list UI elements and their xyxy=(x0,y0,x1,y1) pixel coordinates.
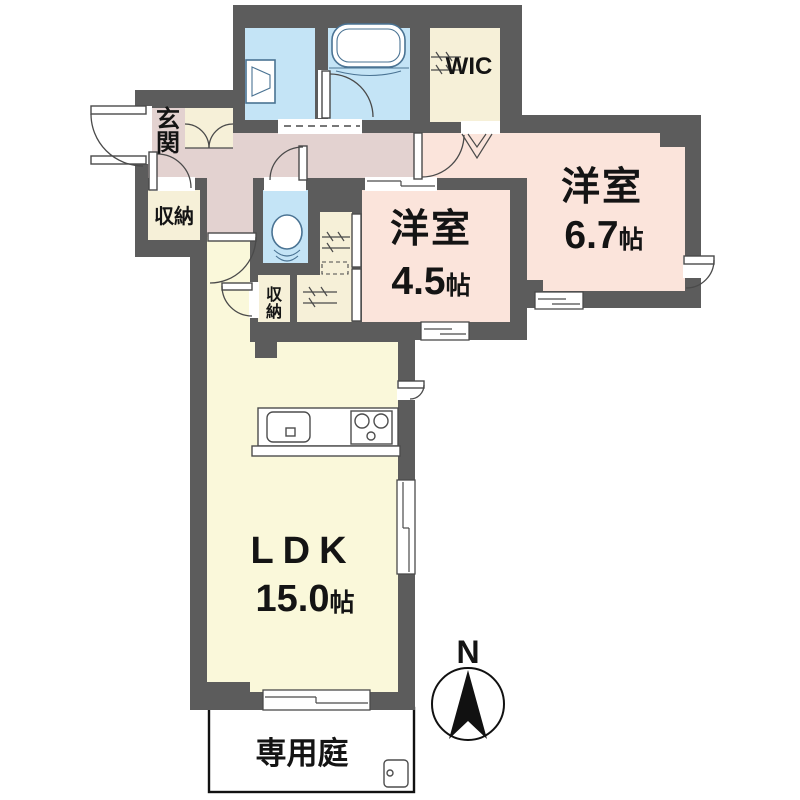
bedroom45-wall-vent xyxy=(421,322,469,340)
closet-door-panel2 xyxy=(352,269,361,321)
closet-upper-floor xyxy=(320,212,352,275)
kitchen-sink-icon xyxy=(267,412,310,442)
stove-burner-center xyxy=(367,432,375,440)
hallway-floor xyxy=(233,133,415,178)
wall-step-bedroom67-top xyxy=(660,133,685,147)
kitchen-counter-edge xyxy=(252,446,400,456)
floor-plan-page: 玄 関 収納 収 納 WIC 洋室 4.5帖 洋室 6.7帖 LDK 15.0帖… xyxy=(0,0,800,800)
bedroom67-label: 洋室 xyxy=(561,166,643,209)
toilet-door-leaf xyxy=(299,146,307,180)
ldk-side-window xyxy=(397,480,415,574)
toilet-icon xyxy=(272,215,302,249)
entrance-storage-label: 収納 xyxy=(154,204,194,228)
bedroom45-label: 洋室 xyxy=(390,208,472,251)
garden-faucet-knob xyxy=(387,770,393,776)
stove-burner-left xyxy=(355,414,369,428)
bedroom67-size-value: 6.7 xyxy=(564,214,618,257)
ldk-door-leaf xyxy=(208,233,256,241)
ldk-size-unit: 帖 xyxy=(329,589,354,617)
entrance-storage-door-leaf xyxy=(149,152,157,190)
floor-plan-drawing: 玄 関 収納 収 納 WIC 洋室 4.5帖 洋室 6.7帖 LDK 15.0帖… xyxy=(0,0,800,800)
bedroom45-size-unit: 帖 xyxy=(446,272,471,300)
wic-door-opening xyxy=(461,121,500,134)
wall-step-ldk-bottom xyxy=(207,682,250,694)
closet-lower-floor xyxy=(297,275,352,322)
wall-step-bedroom67-bottom xyxy=(527,280,543,291)
ldk-main-floor xyxy=(207,342,398,692)
ldk-exterior-door-leaf xyxy=(398,381,424,388)
ldk-size-value: 15.0 xyxy=(256,578,330,620)
closet-door-panel1 xyxy=(352,214,361,267)
vanity-icon xyxy=(246,60,275,103)
kitchen-wall-stub xyxy=(255,342,277,358)
ldk-label: LDK xyxy=(250,530,355,572)
bedroom67-exterior-door-leaf xyxy=(684,256,714,264)
compass-north-label: N xyxy=(456,634,479,670)
bedroom67-door-leaf xyxy=(414,133,422,179)
garden-label: 専用庭 xyxy=(256,736,349,771)
bathroom-door-leaf xyxy=(322,71,330,118)
stove-burner-right xyxy=(374,414,388,428)
hall-storage-label-char1: 収 xyxy=(266,286,283,304)
entrance-closet-floor xyxy=(185,108,233,148)
hall-storage-door-leaf xyxy=(222,283,252,290)
entrance-label-char2: 関 xyxy=(156,130,180,157)
entrance-door-leaf xyxy=(91,106,146,114)
bedroom67-size-unit: 帖 xyxy=(619,226,644,254)
hall-storage-label-char2: 納 xyxy=(266,302,282,321)
bedroom67-wall-vent xyxy=(535,292,583,309)
entrance-label-char1: 玄 xyxy=(156,105,180,133)
hallway-vertical-floor xyxy=(207,178,253,237)
wic-label: WIC xyxy=(446,53,493,80)
kitchen-sink-drain xyxy=(286,428,295,436)
bedroom45-size-value: 4.5 xyxy=(391,260,445,303)
